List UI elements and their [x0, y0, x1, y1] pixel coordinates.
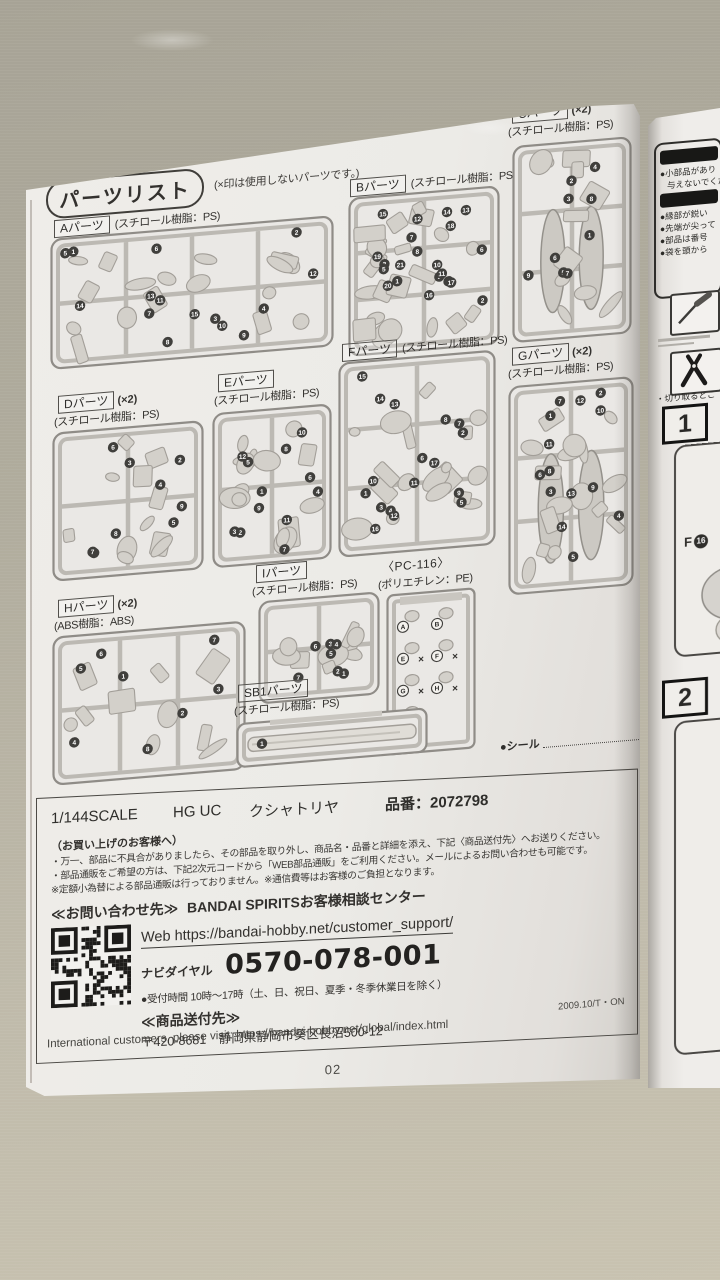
dial-label: ナビダイヤル	[141, 963, 213, 981]
svg-text:2: 2	[599, 390, 603, 397]
warning-header-bar	[660, 189, 718, 208]
svg-text:12: 12	[239, 454, 247, 462]
svg-text:12: 12	[390, 513, 398, 521]
runner-b-material: (スチロール樹脂：PS)	[411, 169, 516, 190]
runner-f-label: Fパーツ(スチロール樹脂：PS)	[342, 330, 507, 362]
svg-text:6: 6	[308, 475, 312, 482]
runner-h-name: Hパーツ	[58, 595, 114, 618]
svg-text:11: 11	[438, 271, 445, 279]
warning-line: ●袋を頭から	[660, 242, 720, 259]
svg-text:3: 3	[128, 460, 132, 467]
customer-note-1: ・万一、部品に不具合がありましたら、その部品を取り外し、商品名・品番と詳細を添え…	[51, 827, 605, 868]
svg-text:4: 4	[158, 482, 162, 489]
svg-text:7: 7	[410, 235, 414, 242]
svg-text:6: 6	[99, 651, 103, 658]
svg-text:1: 1	[260, 489, 264, 496]
runner-d-material: (スチロール樹脂：PS)	[54, 405, 159, 430]
svg-text:2: 2	[295, 230, 299, 237]
svg-text:13: 13	[391, 401, 399, 409]
svg-text:5: 5	[79, 666, 83, 673]
svg-text:16: 16	[426, 292, 434, 300]
svg-text:5: 5	[382, 266, 386, 273]
svg-text:2: 2	[181, 710, 185, 717]
svg-text:2: 2	[481, 298, 485, 305]
svg-text:12: 12	[577, 397, 585, 405]
seal-leader-line	[543, 739, 639, 748]
assembly-part-sketch	[686, 546, 720, 656]
qr-code	[51, 924, 131, 1008]
svg-text:11: 11	[546, 441, 553, 449]
runner-b-diagram: 123456789101112131415161718192021	[348, 185, 500, 358]
right-page-content: ●小部品があり 与えないでくだ ●縁部が鋭い●先端が尖って●部品は番号●袋を頭か…	[648, 82, 720, 1088]
svg-text:14: 14	[443, 209, 451, 217]
svg-text:11: 11	[157, 297, 164, 305]
runner-c-name: Cパーツ	[512, 101, 568, 124]
contact-heading: ≪お問い合わせ先≫	[51, 898, 178, 924]
svg-text:16: 16	[372, 526, 380, 534]
runner-g-multiplier: (×2)	[572, 345, 592, 359]
runner-h-diagram: 12345678	[52, 620, 246, 786]
svg-text:14: 14	[377, 396, 385, 404]
svg-text:6: 6	[155, 246, 159, 253]
svg-text:15: 15	[191, 311, 199, 319]
part-reference-number: 16	[694, 533, 708, 548]
svg-text:G: G	[400, 688, 405, 695]
warning-line: ●縁部が鋭い	[660, 206, 720, 223]
phone-line: ナビダイヤル 0570-078-001	[141, 939, 441, 985]
assembly-panel-2	[674, 710, 720, 1056]
svg-text:7: 7	[558, 398, 562, 405]
svg-text:H: H	[435, 685, 440, 692]
runner-b-label: Bパーツ(スチロール樹脂：PS)	[350, 165, 516, 197]
svg-text:11: 11	[283, 517, 290, 525]
svg-text:1: 1	[72, 249, 76, 256]
svg-text:×: ×	[452, 683, 458, 694]
runner-a-name: Aパーツ	[54, 215, 110, 238]
step-1-number: 1	[662, 403, 708, 445]
product-name: クシャトリヤ	[249, 796, 339, 821]
parts-list-title: パーツリスト	[46, 168, 204, 220]
support-info-box: 1/144SCALE HG UC クシャトリヤ 品番：2072798 （お買い上…	[36, 769, 638, 1064]
svg-text:7: 7	[147, 311, 151, 318]
svg-text:2: 2	[570, 178, 574, 185]
svg-text:20: 20	[384, 283, 392, 291]
svg-text:4: 4	[262, 306, 266, 313]
svg-text:3: 3	[383, 261, 387, 268]
warning-line: ●小部品があり	[660, 163, 720, 180]
svg-text:6: 6	[480, 247, 484, 254]
runner-c-label: Cパーツ(×2)	[512, 99, 591, 124]
svg-text:19: 19	[374, 254, 382, 262]
runner-sb1-diagram: 1	[236, 707, 428, 769]
seal-count: 1	[642, 730, 648, 743]
svg-text:9: 9	[527, 273, 531, 280]
svg-text:8: 8	[416, 249, 420, 256]
runner-i-label: Iパーツ	[256, 561, 307, 583]
manual-page-left: パーツリスト (×印は使用しないパーツです。) ●シール 1 Aパーツ(スチロー…	[26, 104, 640, 1099]
svg-text:6: 6	[314, 643, 318, 650]
svg-text:5: 5	[172, 520, 176, 527]
runner-pc-diagram: ABE×F×G×H×J×	[386, 587, 476, 757]
svg-text:8: 8	[590, 196, 594, 203]
runner-pc-material: (ポリエチレン：PE)	[378, 569, 473, 593]
shipping-address: 〒420-8681 静岡県静岡市葵区長沼500-12	[141, 1020, 383, 1051]
svg-text:9: 9	[457, 490, 461, 497]
svg-text:11: 11	[411, 480, 418, 488]
runner-e-material: (スチロール樹脂：PS)	[214, 384, 319, 409]
svg-text:5: 5	[246, 459, 250, 466]
runner-g-material: (スチロール樹脂：PS)	[508, 357, 613, 382]
runner-g-label: Gパーツ(×2)	[512, 341, 592, 366]
svg-text:13: 13	[568, 490, 576, 498]
safety-warning-box: ●小部品があり 与えないでくだ ●縁部が鋭い●先端が尖って●部品は番号●袋を頭か…	[654, 138, 720, 300]
svg-text:6: 6	[538, 472, 542, 479]
svg-text:10: 10	[298, 429, 306, 437]
runner-c-diagram: 123456789	[512, 136, 632, 344]
svg-text:1: 1	[549, 413, 553, 420]
svg-text:21: 21	[397, 262, 405, 270]
svg-text:10: 10	[597, 407, 605, 415]
svg-text:5: 5	[329, 651, 333, 658]
runner-i-diagram: 1234567	[258, 591, 380, 705]
svg-text:B: B	[435, 621, 440, 628]
phone-number: 0570-078-001	[225, 939, 441, 981]
runner-sb1-label: SB1パーツ	[238, 679, 308, 703]
svg-text:4: 4	[593, 164, 597, 171]
runner-e-label: Eパーツ	[218, 370, 274, 393]
contact-name: BANDAI SPIRITSお客様相談センター	[187, 886, 426, 918]
svg-text:9: 9	[242, 332, 246, 339]
product-item-number: 品番：2072798	[385, 789, 488, 815]
page-number: 02	[26, 1049, 640, 1091]
seal-label: ●シール	[500, 735, 540, 754]
svg-text:1: 1	[342, 671, 346, 678]
svg-text:3: 3	[233, 529, 237, 536]
parts-list-note: (×印は使用しないパーツです。)	[214, 165, 359, 193]
svg-text:×: ×	[418, 718, 424, 729]
runner-e-diagram: 123456789101112	[212, 403, 332, 569]
runner-a-label: Aパーツ(スチロール樹脂：PS)	[54, 206, 220, 238]
runner-pc-label: 〈PC-116〉	[382, 553, 450, 577]
svg-text:2: 2	[239, 530, 243, 537]
svg-text:14: 14	[76, 303, 84, 311]
svg-text:1: 1	[260, 741, 264, 748]
hobby-knife-icon	[670, 290, 720, 336]
svg-text:3: 3	[549, 489, 553, 496]
svg-text:3: 3	[329, 641, 333, 648]
svg-text:4: 4	[316, 489, 320, 496]
svg-text:10: 10	[434, 262, 442, 270]
product-brand: HG UC	[173, 802, 221, 821]
runner-g-name: Gパーツ	[512, 343, 569, 366]
svg-text:9: 9	[180, 503, 184, 510]
manual-page-right: ●小部品があり 与えないでくだ ●縁部が鋭い●先端が尖って●部品は番号●袋を頭か…	[648, 88, 720, 1088]
svg-text:2: 2	[336, 668, 340, 675]
runner-i-material: (スチロール樹脂：PS)	[252, 575, 357, 600]
assembly-panel-1: F 16	[674, 434, 720, 658]
svg-text:5: 5	[64, 250, 68, 257]
part-reference: F 16	[684, 533, 708, 550]
svg-text:7: 7	[297, 675, 301, 682]
svg-text:2: 2	[178, 457, 182, 464]
warning-line: ●部品は番号	[660, 230, 720, 247]
svg-text:8: 8	[548, 468, 552, 475]
svg-text:13: 13	[462, 207, 470, 215]
svg-text:13: 13	[147, 293, 155, 301]
desk-surface: パーツリスト (×印は使用しないパーツです。) ●シール 1 Aパーツ(スチロー…	[0, 0, 720, 1280]
svg-text:5: 5	[460, 500, 464, 507]
svg-text:4: 4	[389, 508, 393, 515]
svg-text:1: 1	[92, 550, 96, 557]
runner-a-diagram: 123456789101112131415	[50, 215, 334, 371]
svg-text:2: 2	[461, 430, 465, 437]
svg-text:9: 9	[591, 485, 595, 492]
runner-d-diagram: 123456789	[52, 420, 204, 583]
runner-sb1-material: (スチロール樹脂：PS)	[234, 694, 339, 719]
svg-text:12: 12	[310, 271, 318, 279]
svg-text:6: 6	[420, 455, 424, 462]
cut-caption: ・切り取るとこ	[656, 388, 716, 405]
customer-note-3: ※定額小為替による部品通販は行っておりません。※通信費等はお客様のご負担となりま…	[51, 863, 440, 896]
customer-note-2: ・部品通販をご希望の方は、下記2次元コードから「WEB部品通販」をご利用ください…	[51, 842, 593, 882]
parts-list-title-text: パーツリスト	[59, 174, 191, 214]
svg-text:1: 1	[588, 232, 592, 239]
svg-text:3: 3	[213, 316, 217, 323]
shipping-heading: ≪商品送付先≫	[141, 1007, 240, 1032]
support-url: Web https://bandai-hobby.net/customer_su…	[141, 915, 453, 949]
warning-line: 与えないでくだ	[660, 175, 720, 192]
svg-text:7: 7	[283, 547, 287, 554]
runner-d-label: Dパーツ(×2)	[58, 389, 137, 414]
svg-text:9: 9	[438, 274, 442, 281]
international-note: International customers, please visit: h…	[47, 1019, 448, 1051]
svg-text:18: 18	[447, 223, 455, 231]
svg-text:×: ×	[418, 654, 424, 665]
svg-text:5: 5	[571, 554, 575, 561]
runner-e-name: Eパーツ	[218, 370, 274, 393]
svg-text:4: 4	[447, 278, 451, 285]
svg-text:17: 17	[448, 280, 456, 288]
step-2-number: 2	[662, 677, 708, 719]
nipper-icon	[670, 348, 720, 397]
svg-text:1: 1	[121, 673, 125, 680]
part-reference-letter: F	[684, 534, 692, 550]
svg-text:5: 5	[561, 270, 565, 277]
svg-text:10: 10	[370, 478, 378, 486]
runner-sb1-name: SB1パーツ	[238, 679, 308, 703]
svg-text:E: E	[401, 656, 406, 663]
runner-d-multiplier: (×2)	[117, 393, 137, 407]
svg-text:7: 7	[457, 421, 461, 428]
runner-a-material: (スチロール樹脂：PS)	[115, 210, 220, 231]
runner-f-material: (スチロール樹脂：PS)	[402, 334, 507, 355]
svg-text:14: 14	[558, 524, 566, 532]
svg-text:10: 10	[219, 323, 227, 331]
runner-h-material: (ABS樹脂：ABS)	[54, 611, 134, 634]
svg-text:6: 6	[553, 255, 557, 262]
svg-text:3: 3	[567, 196, 571, 203]
svg-text:F: F	[435, 653, 439, 660]
product-scale: 1/144SCALE	[51, 806, 138, 827]
svg-text:8: 8	[444, 417, 448, 424]
warning-line: ●先端が尖って	[660, 218, 720, 235]
svg-text:12: 12	[414, 216, 422, 224]
runner-d-name: Dパーツ	[58, 391, 114, 414]
svg-text:1: 1	[395, 278, 399, 285]
customer-heading: （お買い上げのお客様へ）	[51, 832, 183, 854]
parts-list-section: パーツリスト (×印は使用しないパーツです。) ●シール 1 Aパーツ(スチロー…	[32, 83, 644, 810]
svg-text:15: 15	[379, 211, 387, 219]
svg-text:9: 9	[257, 505, 261, 512]
knife-caption-placeholder	[658, 335, 710, 350]
svg-text:3: 3	[379, 504, 383, 511]
svg-text:15: 15	[359, 373, 367, 381]
svg-text:A: A	[401, 624, 406, 631]
edition-code: 2009.10/T・ON	[558, 993, 625, 1013]
svg-text:×: ×	[418, 686, 424, 697]
runner-f-diagram: 1234567891011121314151617	[338, 349, 496, 558]
runner-pc-name: 〈PC-116〉	[382, 554, 450, 576]
svg-text:7: 7	[212, 637, 216, 644]
runner-b-name: Bパーツ	[350, 175, 406, 198]
svg-text:8: 8	[284, 446, 288, 453]
svg-text:4: 4	[73, 740, 77, 747]
runner-g-diagram: 1234567891011121314	[508, 375, 634, 596]
svg-text:4: 4	[617, 513, 621, 520]
runner-i-name: Iパーツ	[256, 561, 307, 583]
svg-text:8: 8	[114, 531, 118, 538]
svg-text:8: 8	[166, 339, 170, 346]
warning-header-bar	[660, 146, 718, 165]
svg-text:8: 8	[146, 746, 150, 753]
svg-text:6: 6	[111, 444, 115, 451]
svg-text:×: ×	[452, 651, 458, 662]
reception-hours: ●受付時間 10時〜17時（土、日、祝日、夏季・冬季休業日を除く）	[141, 977, 447, 1007]
runner-c-multiplier: (×2)	[571, 103, 591, 117]
svg-text:1: 1	[364, 490, 368, 497]
svg-text:J: J	[401, 720, 405, 727]
seal-count-line: ●シール 1	[500, 726, 648, 754]
svg-text:7: 7	[91, 549, 95, 556]
svg-text:17: 17	[431, 460, 439, 468]
runner-h-multiplier: (×2)	[117, 597, 137, 611]
svg-text:4: 4	[335, 641, 339, 648]
runner-c-material: (スチロール樹脂：PS)	[508, 115, 613, 140]
svg-text:7: 7	[566, 271, 570, 278]
svg-text:3: 3	[217, 686, 221, 693]
runner-f-name: Fパーツ	[342, 339, 397, 362]
runner-h-label: Hパーツ(×2)	[58, 593, 137, 618]
